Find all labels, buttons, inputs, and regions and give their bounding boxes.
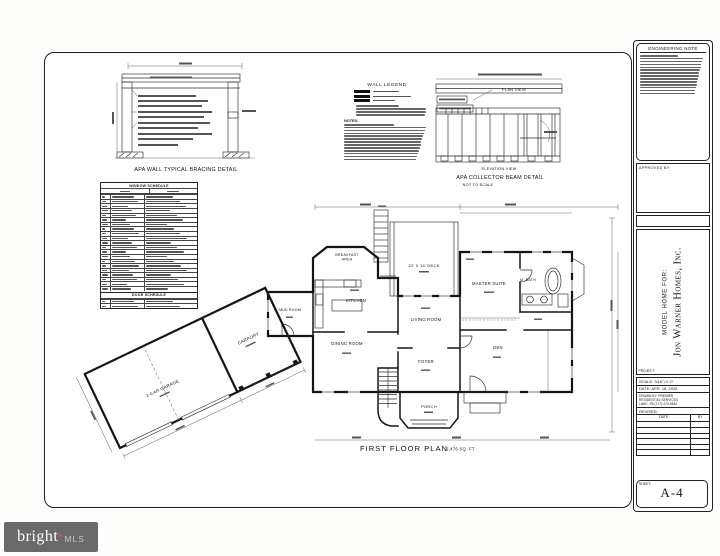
engineering-note-title: ENGINEERING NOTE [640, 46, 706, 53]
revision-date-column: DATE [637, 415, 691, 421]
drawn-by-line3: LANC. PA (717)-470-5542 [639, 402, 707, 406]
floor-plan-title: FIRST FLOOR PLAN [360, 444, 448, 453]
bracing-detail: APA WALL TYPICAL BRACING DETAIL [112, 63, 256, 174]
wall-legend: WALL LEGEND NOTES: [344, 83, 430, 161]
door-schedule-rows [101, 299, 197, 308]
approved-by-box: APPROVED BY: [636, 163, 710, 213]
room-label-kitchen: KITCHEN [346, 298, 366, 303]
interior-walls [313, 252, 572, 392]
revision-table: DATE BY [636, 415, 710, 456]
wall-legend-title: WALL LEGEND [344, 83, 430, 88]
room-label-bath: M. BATH [520, 278, 536, 282]
room-label-carport: CARPORT [237, 331, 260, 346]
annotation-marks [286, 206, 542, 371]
door-schedule-title: DOOR SCHEDULE [101, 292, 197, 299]
blueprint-photo: APA WALL TYPICAL BRACING DETAIL PLAN VIE… [0, 0, 720, 556]
room-label-master: MASTER SUITE [472, 281, 506, 286]
window-schedule-table: WINDOW SCHEDULE DOOR SCHEDULE [100, 182, 198, 309]
title-block: ENGINEERING NOTE APPROVED BY: MODEL HOME… [633, 40, 713, 512]
wall-type-swatch [354, 99, 370, 102]
wall-type-swatch [354, 90, 370, 93]
garage-wing: 2-CAR GARAGE CARPORT [75, 288, 306, 464]
engineering-note-box: ENGINEERING NOTE [636, 43, 710, 161]
drawn-by-row: DRAWN BY: PREMIER RESIDENTIAL SERVICES L… [636, 393, 710, 408]
blank-box [636, 215, 710, 227]
notes-label: NOTES: [344, 119, 430, 123]
room-label-porch: PORCH [421, 404, 437, 409]
wall-type-swatch [354, 95, 370, 98]
watermark-brand: bright [17, 528, 58, 546]
project-title-line2: Jon Warner Homes, Inc. [673, 247, 684, 357]
sheet-number-box: SHEET: A-4 [636, 480, 708, 508]
watermark-star-icon: * [59, 532, 63, 542]
room-label-breakfast-1: BREAKFAST [335, 253, 359, 257]
kitchen-fixtures [315, 280, 362, 328]
revised-row: REVISED: [636, 408, 710, 416]
legend-item [354, 95, 430, 98]
engineering-note-text [640, 55, 706, 94]
date-row: DATE: APR. 18, 2025 [636, 386, 710, 394]
room-label-den: DEN [493, 345, 503, 350]
room-label-foyer: FOYER [418, 359, 434, 364]
bright-mls-watermark: bright * MLS [4, 522, 98, 552]
deck: 22' X 14' DECK [374, 210, 458, 296]
watermark-suffix: MLS [64, 534, 84, 544]
room-label-dining: DINING ROOM [331, 341, 363, 346]
plan-view-label: PLAN VIEW [502, 87, 526, 92]
room-label-breakfast-2: AREA [342, 258, 353, 262]
legend-item [354, 99, 430, 102]
floor-plan-area: 2,476 SQ. FT. [446, 447, 476, 452]
project-title-line1: MODEL HOME FOR: [663, 247, 669, 357]
revision-by-column: BY [691, 415, 709, 421]
scale-row: SCALE: 3/16"=1'-0" [636, 377, 710, 386]
porch: PORCH [400, 392, 458, 428]
front-stoop [464, 392, 506, 413]
legend-item [354, 90, 430, 93]
sheet-number: A-4 [639, 485, 705, 501]
elevation-view-label: ELEVATION VIEW [481, 167, 516, 171]
approved-by-label: APPROVED BY: [639, 166, 671, 170]
bracing-detail-title: APA WALL TYPICAL BRACING DETAIL [134, 167, 237, 173]
project-label: PROJECT: [639, 369, 655, 373]
room-label-living: LIVING ROOM [411, 317, 442, 322]
collector-detail-subtitle: NOT TO SCALE [463, 183, 494, 187]
doors [282, 270, 532, 392]
room-label-mud-room: MUD ROOM [279, 308, 301, 312]
room-label-deck: 22' X 14' DECK [408, 263, 439, 268]
main-stair [378, 368, 398, 426]
collector-detail-title: APA COLLECTOR BEAM DETAIL [456, 175, 543, 181]
notes-paragraph [344, 124, 430, 160]
collector-beam-detail: PLAN VIEW [436, 74, 562, 188]
window-schedule-rows [101, 194, 197, 290]
project-box: MODEL HOME FOR: Jon Warner Homes, Inc. P… [636, 229, 710, 375]
legend-note-paragraph [344, 105, 430, 115]
